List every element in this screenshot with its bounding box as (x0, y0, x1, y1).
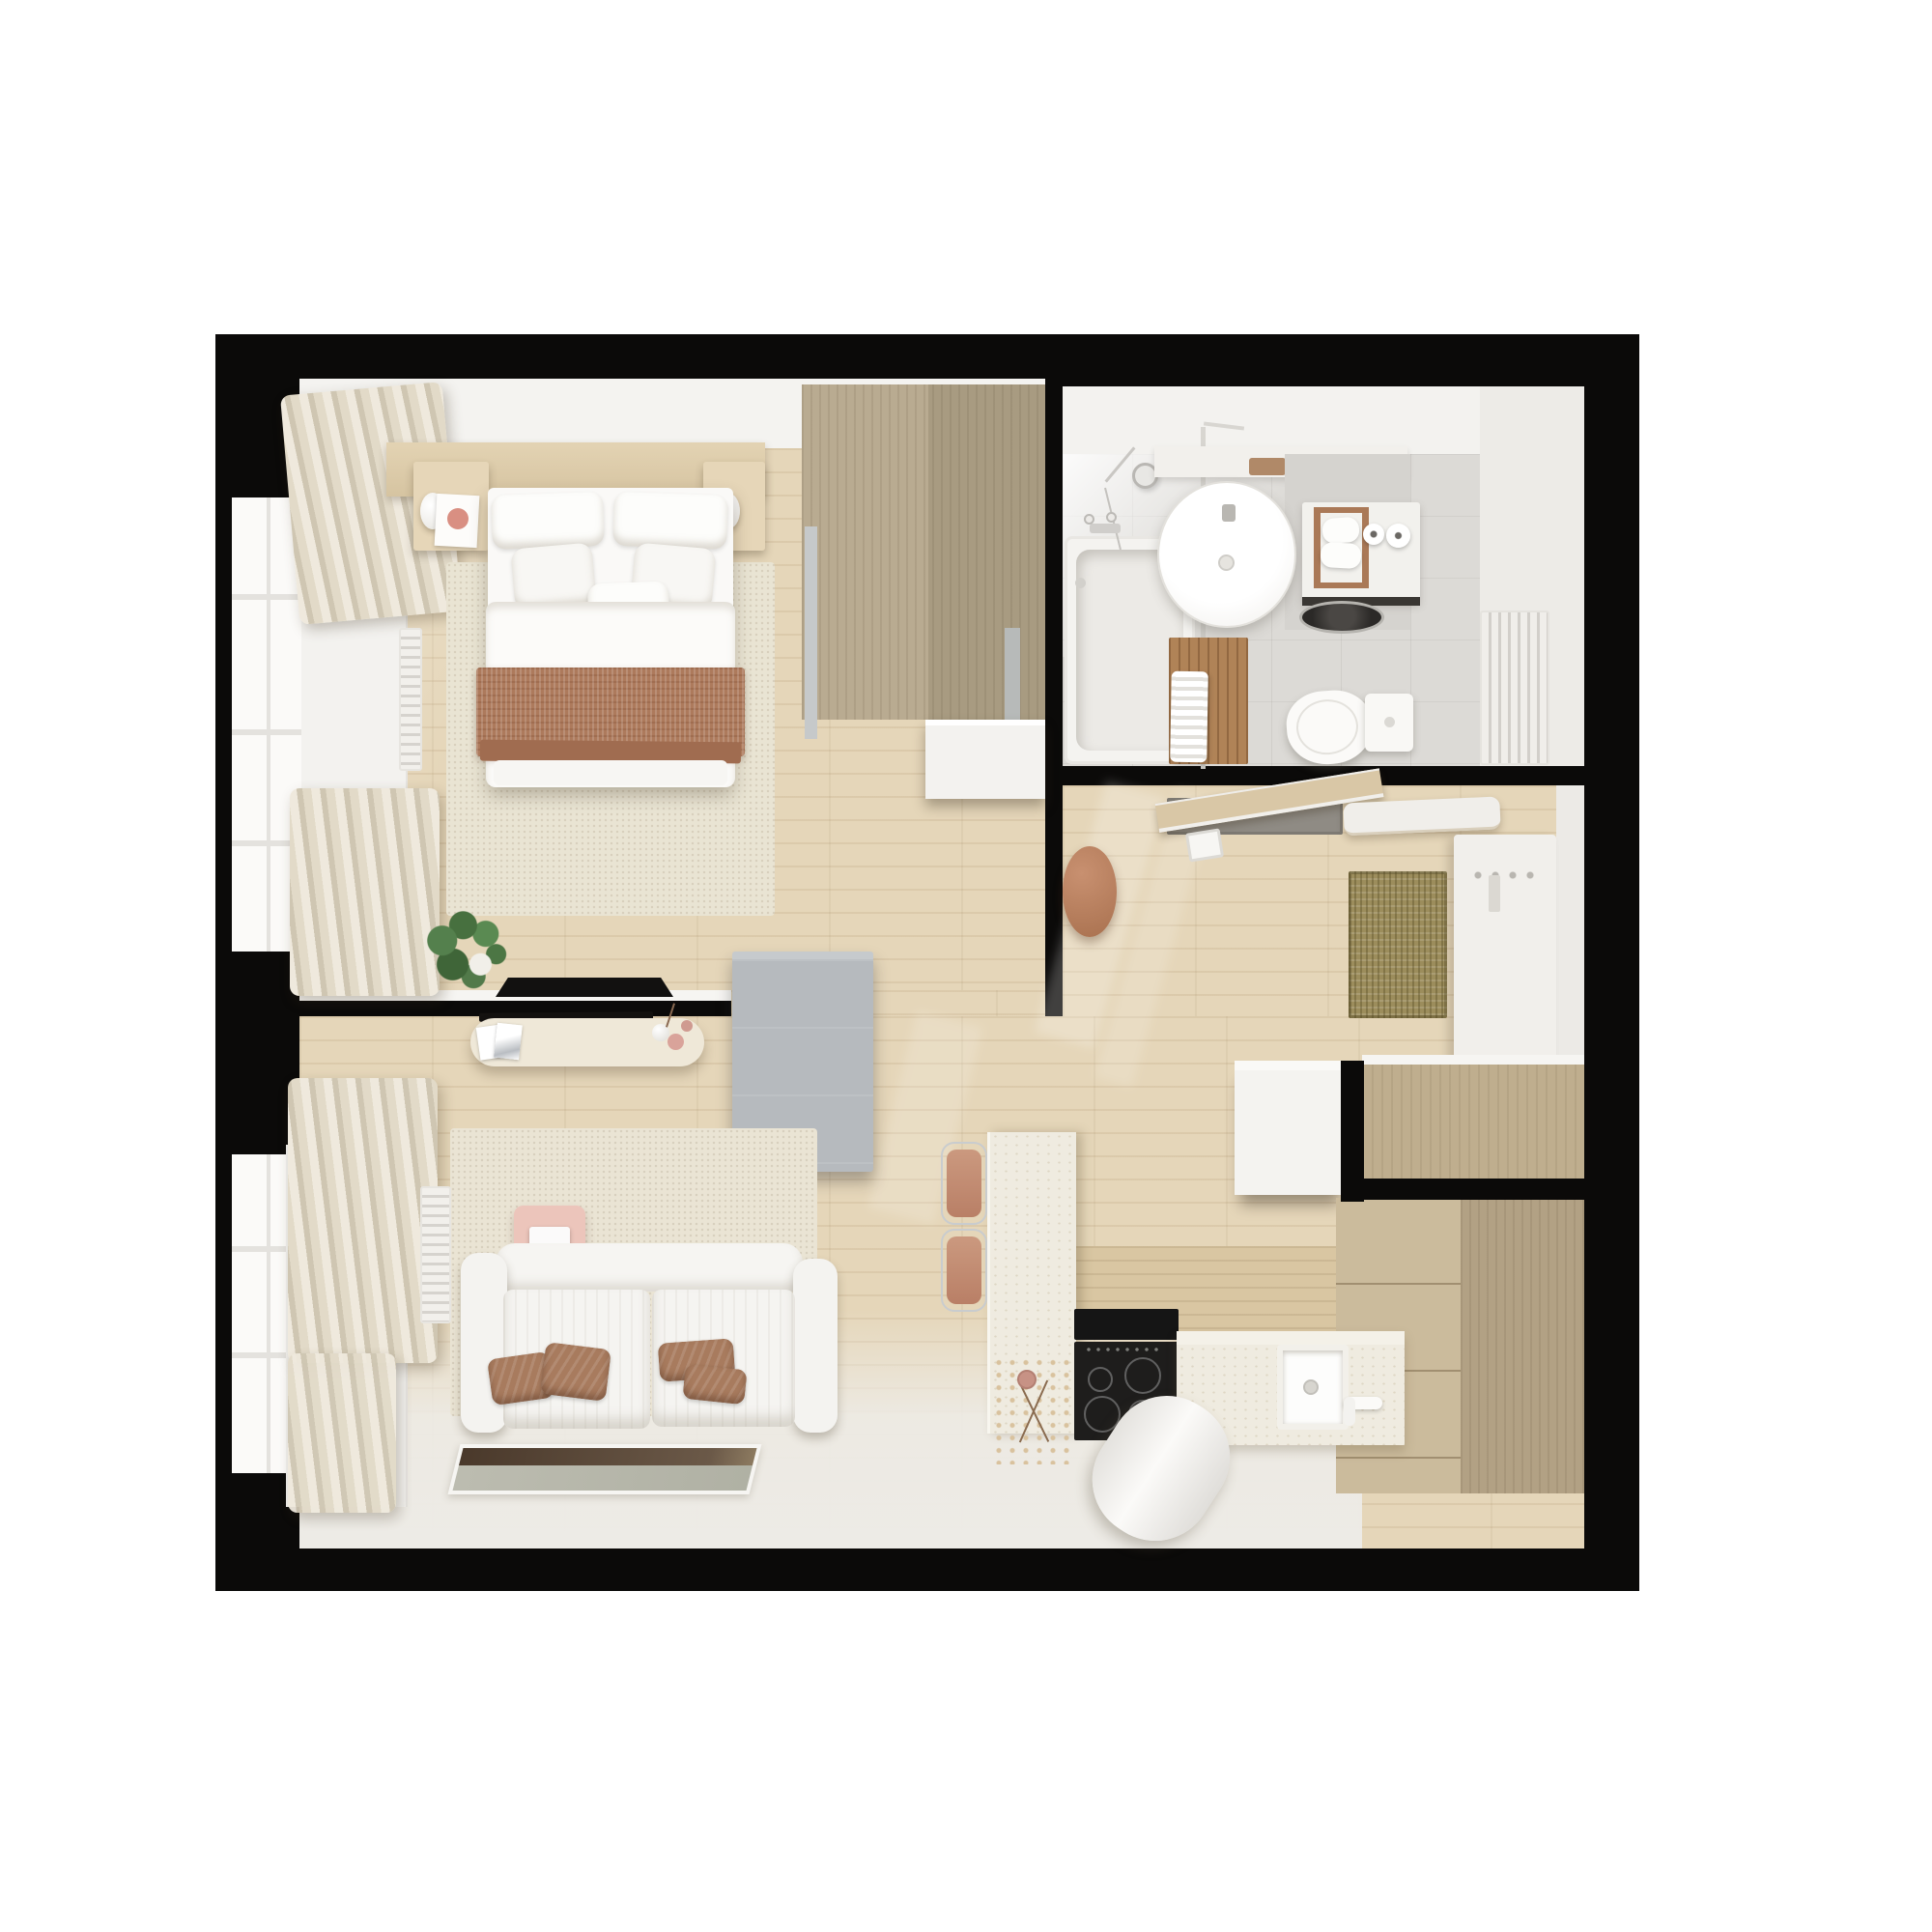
shelf-towel (1249, 458, 1286, 475)
sprig-vase (1017, 1370, 1037, 1389)
wardrobe-handle (805, 526, 817, 739)
rolled-towel (1320, 542, 1361, 569)
bath-tap (1090, 524, 1121, 533)
wardrobe-handle (1005, 628, 1020, 720)
curtain (288, 1078, 438, 1363)
sofa-backrest (496, 1243, 803, 1292)
coat-shelf (1343, 796, 1500, 836)
basin-drain (1218, 554, 1235, 571)
brown-cushion (682, 1364, 747, 1405)
coat-hook-panel (1454, 835, 1556, 1088)
pink-vase (681, 1020, 693, 1032)
toilet-paper-roll (1386, 524, 1410, 548)
hanging-strap (1489, 875, 1500, 912)
sink-drain (1303, 1379, 1319, 1395)
floor-artwork-mat (448, 1444, 762, 1494)
basin-tap (1222, 504, 1236, 522)
pink-vase (668, 1034, 684, 1050)
curtain (288, 1353, 396, 1513)
artwork-light-band (453, 1465, 753, 1491)
tap-handle (1084, 514, 1094, 525)
burner-ring (1088, 1367, 1113, 1392)
sofa-armrest (461, 1253, 507, 1433)
kitchen-faucet-base (1344, 1397, 1355, 1426)
flush-button (1384, 717, 1395, 727)
bedroom-radiator (399, 628, 422, 771)
bar-stool (941, 1142, 987, 1225)
wardrobe (802, 384, 1045, 720)
potted-plant (423, 910, 510, 995)
cooktop-edge (1074, 1309, 1179, 1340)
sisal-rug (1349, 871, 1447, 1018)
bar-stool (941, 1229, 987, 1312)
bed-foot-sheet (494, 760, 727, 785)
terracotta-pouf (1063, 846, 1117, 937)
tap-handle (1106, 512, 1117, 523)
pillow (491, 492, 605, 550)
floorplan-render (0, 0, 1932, 1932)
pillow (612, 492, 728, 550)
magazine (494, 1023, 523, 1061)
living-radiator (420, 1186, 451, 1323)
double-bed (488, 488, 733, 785)
towel-radiator (1480, 611, 1549, 765)
stool-seat (947, 1150, 981, 1217)
hallway-right-wall-face (1556, 785, 1584, 1061)
stool-seat (947, 1236, 981, 1304)
burner-ring (1124, 1357, 1161, 1394)
white-dresser (925, 720, 1045, 799)
bathtub-drain (1075, 578, 1086, 588)
curtain (290, 788, 440, 996)
pillow (510, 542, 596, 611)
book-cover-dot (447, 508, 469, 529)
floating-sideboard (1235, 1061, 1345, 1195)
sofa-armrest (793, 1259, 838, 1433)
kitchen-wall-horizontal (1341, 1179, 1584, 1200)
black-tray (496, 978, 673, 997)
artwork-dark-band (459, 1448, 756, 1465)
rolled-towel (1321, 517, 1360, 545)
washer-drum (1299, 601, 1384, 634)
kitchen-cabinet-front (1362, 1055, 1584, 1198)
brown-cushion (540, 1342, 611, 1402)
door-handle (1185, 828, 1224, 862)
apartment-outline (215, 334, 1639, 1591)
white-towel (1170, 671, 1208, 763)
toilet-paper-roll (1363, 524, 1384, 545)
sofa (461, 1243, 838, 1435)
